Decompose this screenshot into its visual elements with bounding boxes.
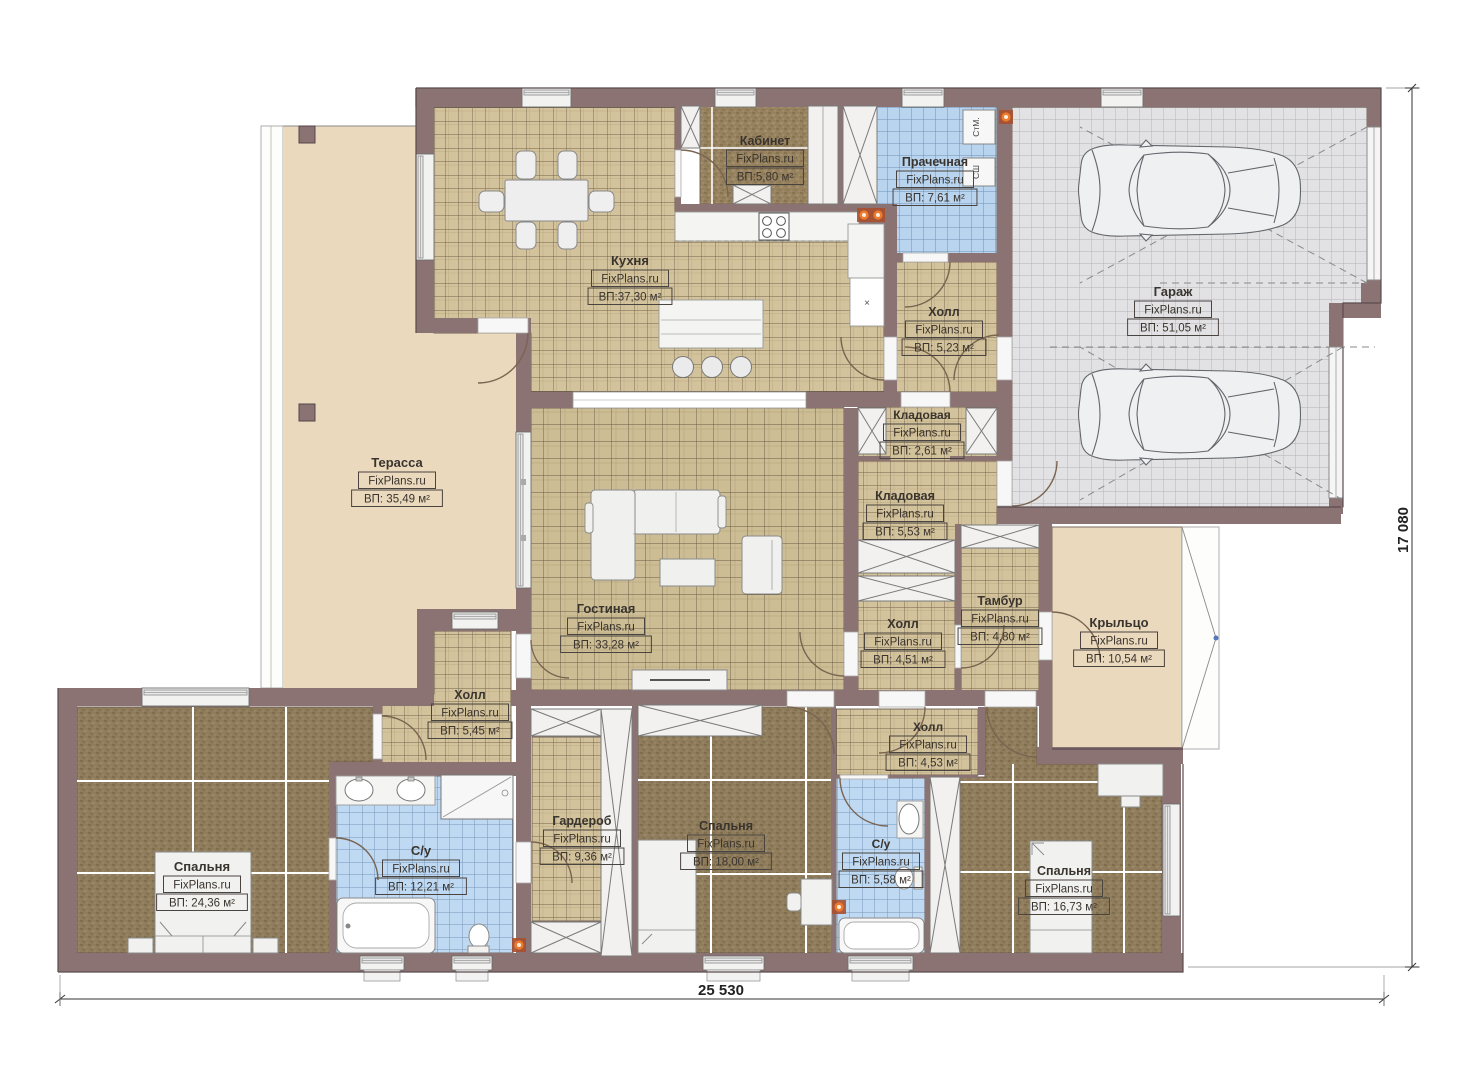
svg-text:Терасса: Терасса [371, 455, 423, 470]
svg-text:FixPlans.ru: FixPlans.ru [601, 273, 659, 285]
svg-text:Гостиная: Гостиная [577, 601, 636, 616]
svg-text:Холл: Холл [887, 617, 918, 631]
svg-text:ВП: 2,61 м²: ВП: 2,61 м² [892, 445, 952, 457]
svg-text:Прачечная: Прачечная [902, 155, 968, 169]
svg-text:Тамбур: Тамбур [977, 594, 1023, 608]
svg-text:ВП: 5,23 м²: ВП: 5,23 м² [914, 342, 974, 354]
svg-text:Спальня: Спальня [1037, 864, 1091, 878]
svg-text:ВП: 12,21 м²: ВП: 12,21 м² [388, 881, 454, 893]
svg-text:FixPlans.ru: FixPlans.ru [874, 636, 932, 648]
svg-text:FixPlans.ru: FixPlans.ru [697, 838, 755, 850]
svg-text:Холл: Холл [454, 688, 485, 702]
svg-text:FixPlans.ru: FixPlans.ru [1144, 304, 1202, 316]
svg-text:FixPlans.ru: FixPlans.ru [173, 879, 231, 891]
svg-text:ВП: 35,49 м²: ВП: 35,49 м² [364, 493, 430, 505]
svg-text:С/у: С/у [411, 843, 432, 858]
svg-text:ВП:37,30 м²: ВП:37,30 м² [599, 291, 662, 303]
svg-text:ВП: 33,28 м²: ВП: 33,28 м² [573, 639, 639, 651]
svg-text:Кладовая: Кладовая [875, 489, 935, 503]
svg-text:ВП: 4,51 м²: ВП: 4,51 м² [873, 654, 933, 666]
svg-text:FixPlans.ru: FixPlans.ru [852, 856, 910, 868]
svg-text:FixPlans.ru: FixPlans.ru [736, 153, 794, 165]
svg-text:FixPlans.ru: FixPlans.ru [876, 508, 934, 520]
svg-text:ВП: 5,58 м²: ВП: 5,58 м² [851, 874, 911, 886]
svg-text:×: × [864, 298, 870, 309]
svg-text:ВП: 24,36 м²: ВП: 24,36 м² [169, 897, 235, 909]
svg-text:Холл: Холл [913, 720, 943, 734]
svg-text:ВП: 16,73 м²: ВП: 16,73 м² [1031, 901, 1097, 913]
svg-text:FixPlans.ru: FixPlans.ru [392, 863, 450, 875]
svg-text:FixPlans.ru: FixPlans.ru [441, 707, 499, 719]
svg-text:ВП: 51,05 м²: ВП: 51,05 м² [1140, 322, 1206, 334]
svg-text:17 080: 17 080 [1395, 507, 1412, 553]
svg-text:ВП: 10,54 м²: ВП: 10,54 м² [1086, 653, 1152, 665]
svg-text:Гардероб: Гардероб [552, 814, 611, 828]
svg-text:Кладовая: Кладовая [893, 408, 950, 422]
svg-text:Кухня: Кухня [611, 253, 649, 268]
svg-text:Спальня: Спальня [174, 859, 230, 874]
svg-text:С/у: С/у [872, 837, 891, 851]
svg-text:ВП: 4,53 м²: ВП: 4,53 м² [898, 757, 958, 769]
svg-text:ВП: 18,00 м²: ВП: 18,00 м² [693, 856, 759, 868]
svg-text:Спальня: Спальня [699, 819, 753, 833]
svg-text:FixPlans.ru: FixPlans.ru [577, 621, 635, 633]
svg-text:FixPlans.ru: FixPlans.ru [553, 833, 611, 845]
svg-text:FixPlans.ru: FixPlans.ru [899, 739, 957, 751]
svg-text:ВП: 5,53 м²: ВП: 5,53 м² [875, 526, 935, 538]
svg-text:ВП: 7,61 м²: ВП: 7,61 м² [905, 192, 965, 204]
svg-text:Кабинет: Кабинет [740, 134, 791, 148]
svg-text:ВП: 5,45 м²: ВП: 5,45 м² [440, 725, 500, 737]
svg-text:FixPlans.ru: FixPlans.ru [906, 174, 964, 186]
svg-text:FixPlans.ru: FixPlans.ru [915, 324, 973, 336]
svg-text:FixPlans.ru: FixPlans.ru [368, 475, 426, 487]
svg-text:СШ: СШ [971, 165, 981, 179]
svg-text:ВП: 9,36 м²: ВП: 9,36 м² [552, 851, 612, 863]
svg-text:25 530: 25 530 [698, 982, 744, 999]
svg-text:FixPlans.ru: FixPlans.ru [1035, 883, 1093, 895]
svg-text:Крыльцо: Крыльцо [1089, 615, 1148, 630]
svg-text:FixPlans.ru: FixPlans.ru [971, 613, 1029, 625]
svg-text:ВП: 4,80 м²: ВП: 4,80 м² [970, 631, 1030, 643]
svg-text:Гараж: Гараж [1154, 284, 1194, 299]
svg-text:FixPlans.ru: FixPlans.ru [1090, 635, 1148, 647]
svg-text:FixPlans.ru: FixPlans.ru [893, 427, 951, 439]
svg-text:СтМ.: СтМ. [971, 117, 981, 136]
svg-text:Холл: Холл [928, 305, 959, 319]
svg-text:ВП:5,80 м²: ВП:5,80 м² [737, 171, 794, 183]
